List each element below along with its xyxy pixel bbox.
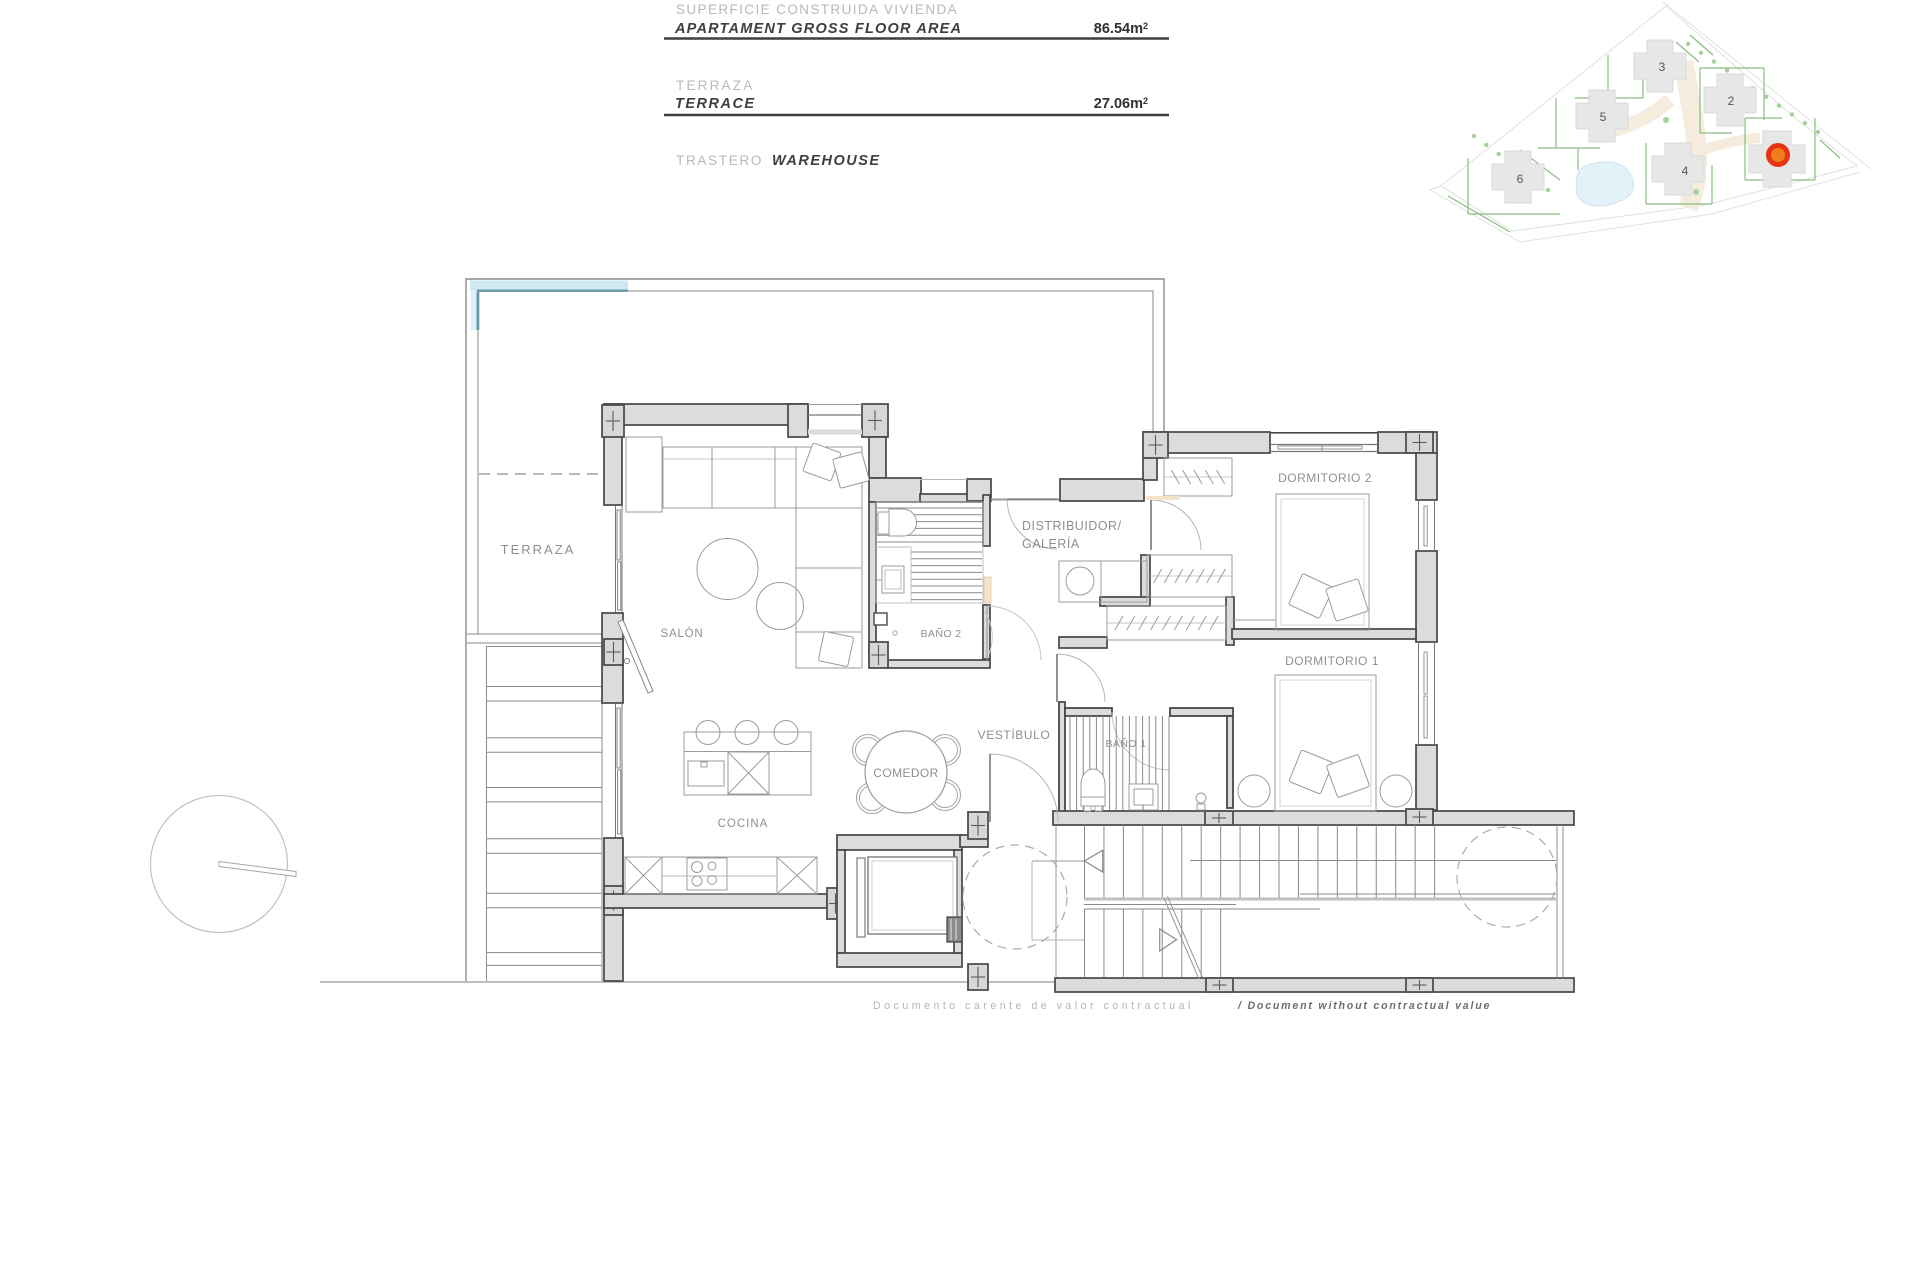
svg-text:27.06m2: 27.06m2	[1094, 96, 1148, 112]
svg-text:4: 4	[1682, 164, 1689, 178]
svg-text:86.54m2: 86.54m2	[1094, 21, 1148, 37]
svg-text:TERRAZA: TERRAZA	[501, 542, 576, 557]
svg-text:5: 5	[1600, 110, 1607, 124]
svg-text:COCINA: COCINA	[718, 818, 769, 830]
svg-text:BAÑO 1: BAÑO 1	[1106, 737, 1147, 750]
svg-text:TERRAZA: TERRAZA	[676, 78, 754, 93]
svg-text:/ Document without contractual: / Document without contractual value	[1237, 1000, 1491, 1012]
svg-text:GALERÍA: GALERÍA	[1022, 536, 1080, 551]
svg-text:SALÓN: SALÓN	[661, 627, 704, 640]
svg-text:SUPERFICIE CONSTRUIDA VIVIENDA: SUPERFICIE CONSTRUIDA VIVIENDA	[676, 2, 958, 17]
svg-text:TERRACE: TERRACE	[675, 96, 756, 112]
svg-text:DORMITORIO 2: DORMITORIO 2	[1278, 471, 1372, 485]
svg-text:TRASTERO: TRASTERO	[676, 153, 763, 168]
svg-text:6: 6	[1517, 172, 1524, 186]
svg-text:DISTRIBUIDOR/: DISTRIBUIDOR/	[1022, 519, 1122, 533]
svg-text:VESTÍBULO: VESTÍBULO	[978, 727, 1051, 742]
svg-text:Documento carente de valor con: Documento carente de valor contractual	[873, 1000, 1194, 1012]
svg-text:DORMITORIO 1: DORMITORIO 1	[1285, 654, 1379, 668]
svg-text:WAREHOUSE: WAREHOUSE	[772, 153, 881, 169]
svg-text:APARTAMENT GROSS FLOOR AREA: APARTAMENT GROSS FLOOR AREA	[674, 21, 962, 37]
svg-text:3: 3	[1659, 60, 1666, 74]
svg-text:BAÑO 2: BAÑO 2	[921, 627, 962, 640]
svg-text:COMEDOR: COMEDOR	[873, 766, 938, 780]
svg-text:2: 2	[1728, 94, 1735, 108]
